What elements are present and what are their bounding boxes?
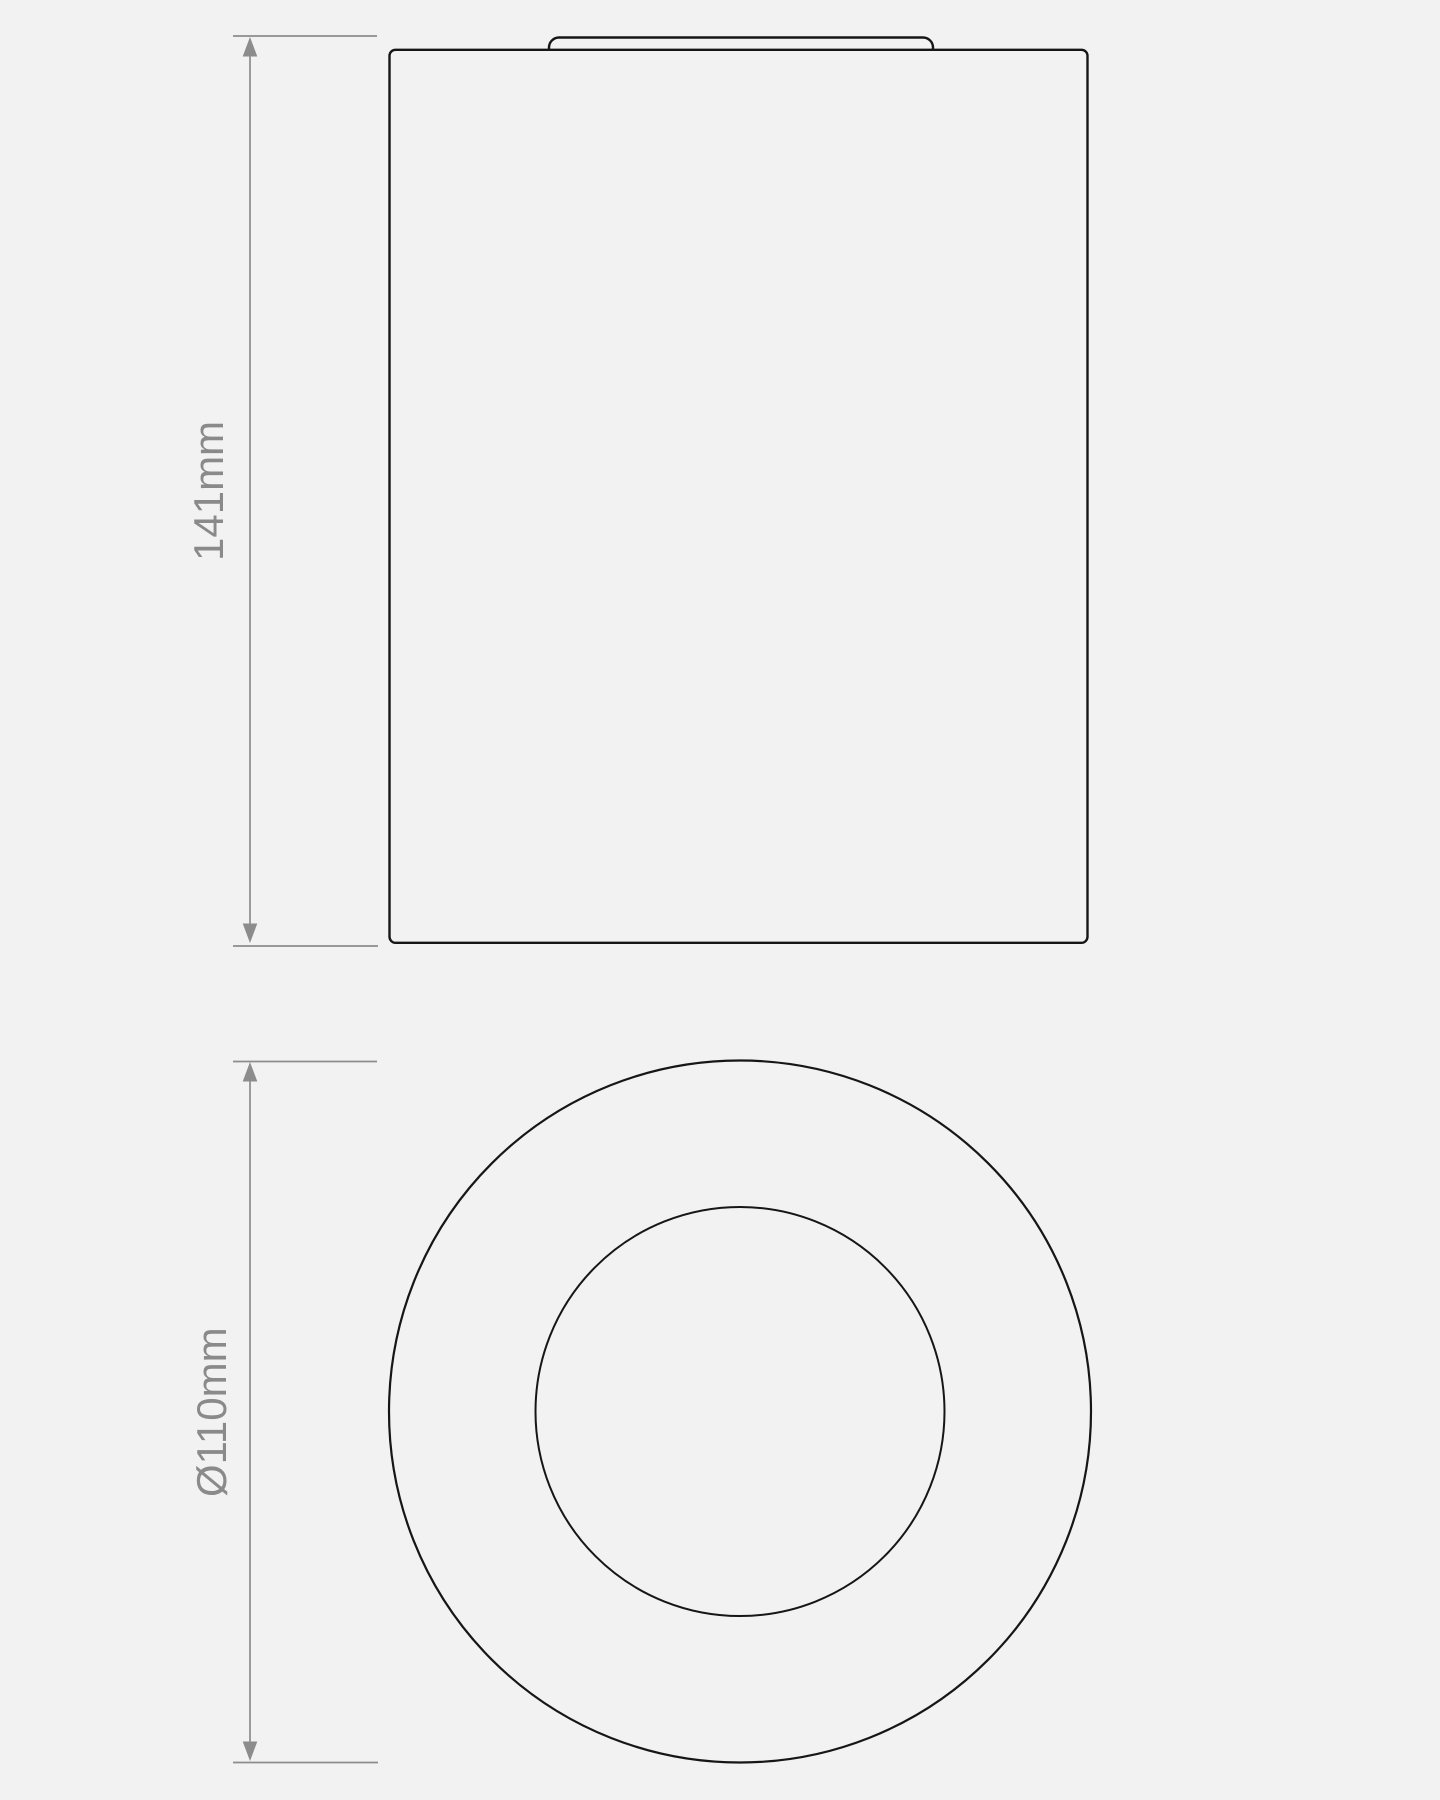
svg-text:Ø110mm: Ø110mm [188, 1327, 235, 1497]
svg-text:141mm: 141mm [185, 421, 232, 561]
